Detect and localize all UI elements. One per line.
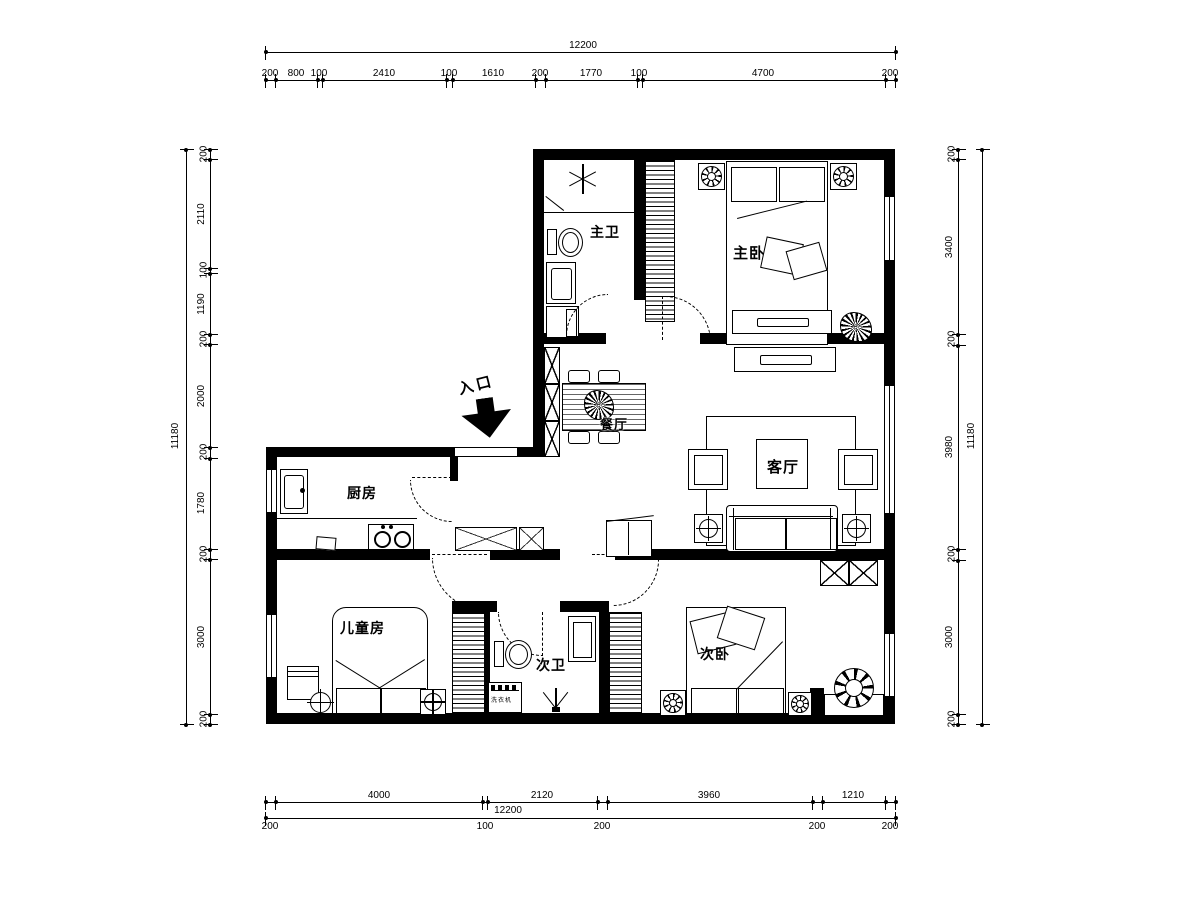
dim-chain-top-total: 12200 bbox=[265, 38, 895, 56]
wall-bath1-right bbox=[634, 160, 645, 300]
dim-tick bbox=[204, 159, 218, 160]
ceiling-lamp-icon bbox=[424, 693, 442, 711]
dim-chain-top-segments: 200 800 100 2410 100 1610 200 1770 100 4… bbox=[265, 66, 895, 84]
dim-label: 12200 bbox=[494, 806, 522, 816]
fan-lamp-icon bbox=[701, 166, 722, 187]
tv-cabinet bbox=[734, 347, 836, 372]
dim-label: 4700 bbox=[752, 69, 774, 79]
door-arc-master-bedroom bbox=[665, 296, 711, 342]
dim-label: 100 bbox=[477, 822, 494, 832]
door-leaf-kids bbox=[432, 554, 487, 555]
dim-tick bbox=[952, 149, 966, 150]
dim-label: 1610 bbox=[482, 69, 504, 79]
ceiling-lamp-icon bbox=[310, 692, 331, 713]
bathroom-sink bbox=[546, 262, 576, 304]
dim-tick bbox=[952, 549, 966, 550]
room-label-second-bedroom: 次卧 bbox=[700, 644, 730, 664]
window-master-bedroom bbox=[884, 197, 895, 260]
kitchen-counter-line bbox=[277, 518, 417, 519]
door-leaf-second-bath bbox=[542, 612, 543, 656]
column-hatch bbox=[544, 421, 560, 457]
dim-label: 2110 bbox=[197, 203, 207, 225]
dim-tick bbox=[952, 345, 966, 346]
dim-tick bbox=[265, 812, 266, 826]
dim-tick bbox=[204, 268, 218, 269]
plant-icon bbox=[840, 312, 872, 342]
papasan-chair bbox=[834, 668, 874, 708]
bath1-partition bbox=[544, 212, 634, 213]
fan-lamp-icon bbox=[833, 166, 854, 187]
dim-tick bbox=[642, 74, 643, 88]
entrance-arrow-icon bbox=[459, 395, 514, 442]
floor-plan-canvas: 12200 200 800 100 2410 100 1610 200 1770… bbox=[0, 0, 1200, 900]
dim-tick bbox=[180, 149, 194, 150]
window-kids-room bbox=[266, 615, 277, 677]
dim-tick bbox=[452, 74, 453, 88]
dim-tick bbox=[895, 812, 896, 826]
dim-chain-left-total: 11180 bbox=[172, 149, 190, 724]
armchair bbox=[838, 449, 878, 490]
dim-tick bbox=[952, 724, 966, 725]
dim-tick bbox=[446, 74, 447, 88]
dim-tick bbox=[976, 724, 990, 725]
room-label-living: 客厅 bbox=[767, 456, 799, 477]
window-kitchen bbox=[266, 470, 277, 512]
dim-label: 3000 bbox=[197, 626, 207, 648]
dim-tick bbox=[204, 273, 218, 274]
dim-tick bbox=[204, 714, 218, 715]
dim-tick bbox=[204, 447, 218, 448]
dim-tick bbox=[895, 796, 896, 810]
shower-icon bbox=[568, 164, 598, 194]
wall-left-upper bbox=[533, 149, 544, 457]
sofa bbox=[726, 505, 838, 552]
dim-chain-left-segments: 200 2110 100 1190 200 2000 200 1780 200 … bbox=[196, 149, 214, 724]
armchair bbox=[688, 449, 728, 490]
dim-label: 3000 bbox=[945, 626, 955, 648]
dim-chain-right-total: 11180 bbox=[968, 149, 986, 724]
bath1-diagonal bbox=[545, 196, 564, 211]
kitchen-sink bbox=[280, 469, 308, 514]
dim-label: 11180 bbox=[171, 423, 181, 449]
door-arc-second-bedroom bbox=[613, 560, 659, 606]
fan-lamp-icon bbox=[663, 693, 683, 713]
door-leaf-kitchen bbox=[412, 477, 452, 478]
door-arc-kids bbox=[432, 558, 484, 610]
ceiling-lamp-icon bbox=[847, 519, 866, 538]
hallway-cabinet bbox=[455, 527, 517, 551]
stove bbox=[368, 524, 414, 550]
washer-label: 洗衣机 bbox=[491, 695, 512, 704]
dim-label: 12200 bbox=[569, 41, 597, 51]
dim-label: 800 bbox=[288, 69, 305, 79]
dim-tick bbox=[317, 74, 318, 88]
room-label-entrance: 入口 bbox=[456, 370, 496, 399]
entrance-threshold bbox=[455, 447, 517, 457]
dim-chain-bottom-total: 12200 200 100 200 200 200 bbox=[265, 794, 895, 822]
dim-label: 200 bbox=[594, 822, 611, 832]
dining-chair bbox=[568, 370, 590, 383]
dim-label: 3980 bbox=[945, 436, 955, 458]
shower-tray bbox=[568, 616, 596, 662]
dim-chain-right-segments: 200 3400 200 3980 200 3000 200 bbox=[944, 149, 962, 724]
kitchen-item bbox=[315, 536, 336, 551]
room-label-second-bath: 次卫 bbox=[536, 655, 566, 675]
dim-tick bbox=[545, 74, 546, 88]
wall-bath2-right bbox=[599, 601, 609, 713]
column-hatch bbox=[544, 347, 560, 384]
dim-tick bbox=[952, 714, 966, 715]
dim-tick bbox=[204, 724, 218, 725]
wall-kitchen-bottom-a bbox=[266, 549, 430, 560]
washing-machine: 洗衣机 bbox=[488, 682, 522, 713]
wardrobe-second bbox=[609, 612, 642, 713]
dim-tick bbox=[204, 344, 218, 345]
ceiling-lamp-icon bbox=[699, 519, 718, 538]
wardrobe-kids bbox=[452, 612, 485, 713]
column-hatch bbox=[849, 560, 878, 586]
window-second-bedroom bbox=[884, 634, 895, 696]
toilet-icon bbox=[547, 229, 557, 255]
dim-label: 1770 bbox=[580, 69, 602, 79]
dim-tick bbox=[885, 74, 886, 88]
room-label-kitchen: 厨房 bbox=[347, 483, 377, 503]
dim-tick bbox=[952, 560, 966, 561]
dim-label: 200 bbox=[809, 822, 826, 832]
wall-papasan-stub bbox=[810, 688, 824, 713]
dim-tick bbox=[952, 159, 966, 160]
shower-icon bbox=[543, 688, 569, 708]
dim-label: 2000 bbox=[197, 385, 207, 407]
dim-tick bbox=[952, 334, 966, 335]
dim-tick bbox=[204, 549, 218, 550]
room-label-master-bath: 主卫 bbox=[590, 222, 620, 242]
column-hatch bbox=[544, 384, 560, 421]
dim-label: 1190 bbox=[197, 293, 207, 315]
door-leaf-master-bedroom bbox=[662, 296, 663, 340]
dim-tick bbox=[204, 334, 218, 335]
dresser bbox=[732, 310, 832, 334]
dining-chair bbox=[568, 431, 590, 444]
dim-tick bbox=[180, 724, 194, 725]
dim-tick bbox=[895, 74, 896, 88]
dining-chair bbox=[598, 370, 620, 383]
dim-tick bbox=[204, 149, 218, 150]
room-label-master-bedroom: 主卧 bbox=[733, 242, 765, 263]
dim-tick bbox=[204, 559, 218, 560]
dim-label: 11180 bbox=[967, 423, 977, 449]
fan-lamp-icon bbox=[791, 695, 809, 713]
door-arc-kitchen bbox=[410, 480, 452, 522]
dim-label: 3400 bbox=[945, 236, 955, 258]
dim-label: 2410 bbox=[373, 69, 395, 79]
dim-tick bbox=[265, 74, 266, 88]
dim-tick bbox=[637, 74, 638, 88]
dim-tick bbox=[204, 458, 218, 459]
dim-tick bbox=[895, 46, 896, 60]
hall-cabinet bbox=[606, 520, 652, 557]
dim-tick bbox=[976, 149, 990, 150]
hallway-cabinet bbox=[519, 527, 544, 551]
room-label-dining: 餐厅 bbox=[600, 414, 628, 433]
dim-tick bbox=[265, 46, 266, 60]
dim-label: 100 bbox=[441, 69, 458, 79]
dim-label: 1780 bbox=[197, 492, 207, 514]
wall-top bbox=[533, 149, 895, 160]
toilet-icon bbox=[494, 641, 504, 667]
window-living bbox=[884, 386, 895, 513]
room-label-kids: 儿童房 bbox=[340, 618, 385, 638]
dim-tick bbox=[535, 74, 536, 88]
shower-base bbox=[552, 707, 560, 712]
dim-tick bbox=[322, 74, 323, 88]
door-leaf-master-bath bbox=[566, 336, 606, 337]
column-hatch bbox=[820, 560, 849, 586]
dim-tick bbox=[275, 74, 276, 88]
